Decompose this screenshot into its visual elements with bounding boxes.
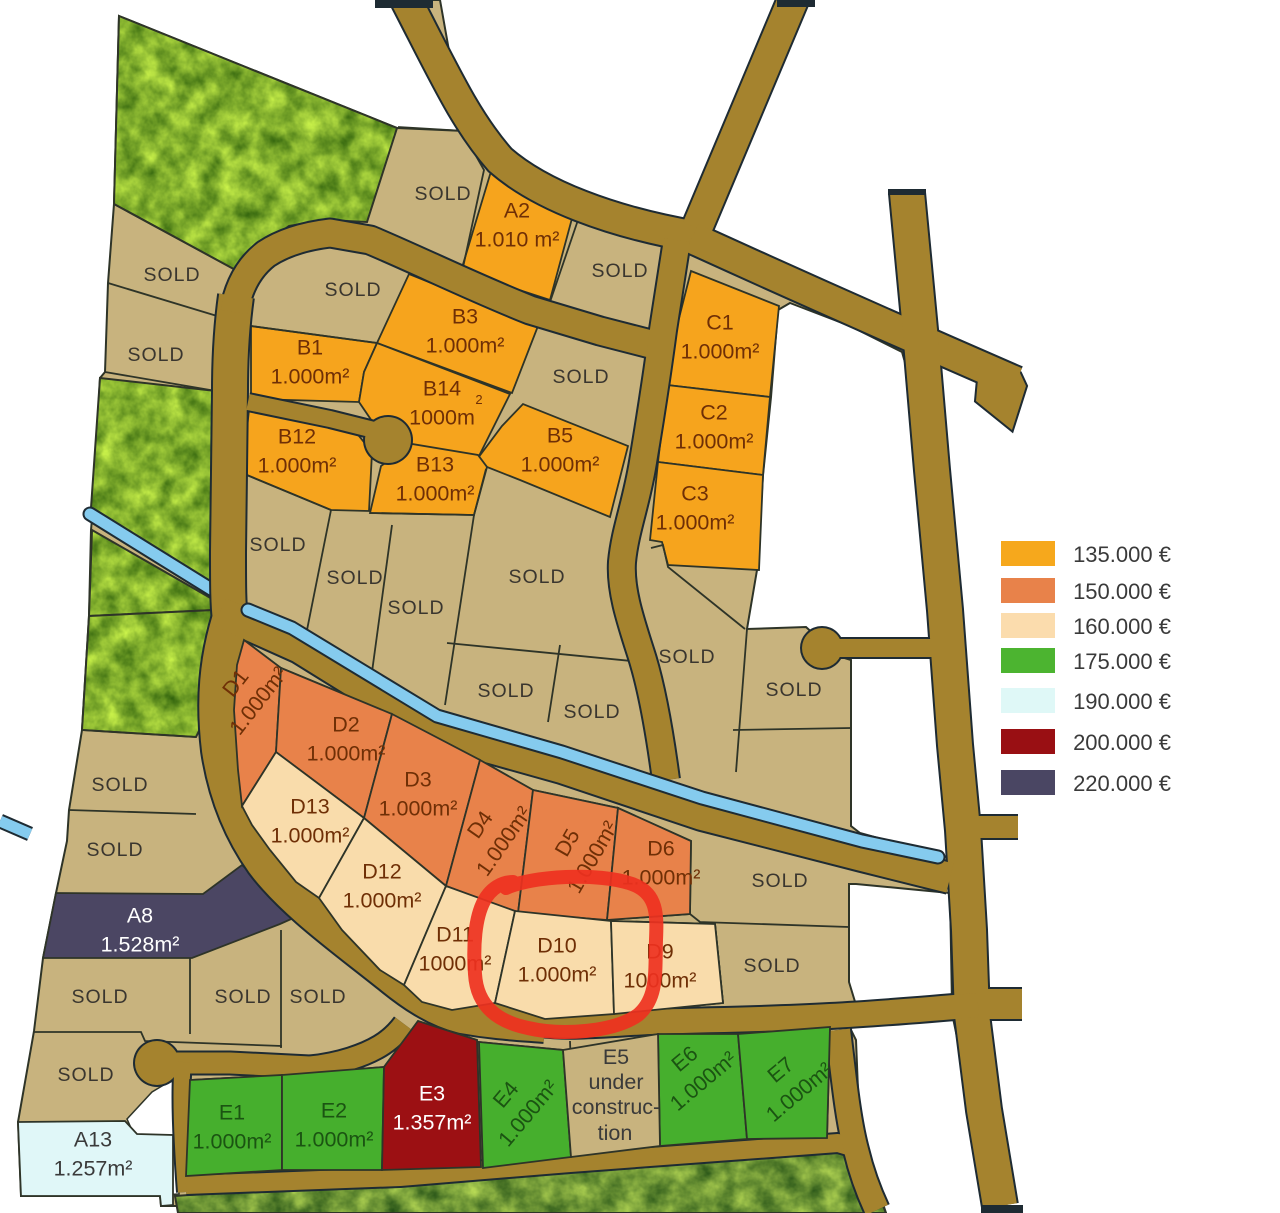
svg-text:1.357m²: 1.357m² — [393, 1111, 472, 1135]
svg-text:1.000m²: 1.000m² — [426, 334, 505, 358]
svg-text:D12: D12 — [362, 860, 401, 884]
svg-text:E1: E1 — [219, 1101, 245, 1125]
svg-text:190.000 €: 190.000 € — [1073, 689, 1171, 714]
svg-text:tion: tion — [598, 1121, 633, 1145]
svg-text:175.000 €: 175.000 € — [1073, 649, 1171, 674]
svg-text:SOLD: SOLD — [658, 646, 715, 668]
svg-text:C1: C1 — [706, 311, 733, 335]
svg-text:1.528m²: 1.528m² — [101, 933, 180, 957]
svg-text:C3: C3 — [681, 482, 709, 506]
svg-text:SOLD: SOLD — [249, 534, 306, 556]
svg-text:SOLD: SOLD — [751, 870, 808, 892]
svg-text:B5: B5 — [547, 424, 573, 448]
svg-text:2: 2 — [475, 392, 482, 407]
svg-text:1000m: 1000m — [409, 406, 475, 430]
svg-text:under: under — [589, 1070, 644, 1094]
svg-text:1.000m²: 1.000m² — [343, 889, 422, 913]
svg-text:E3: E3 — [419, 1082, 445, 1106]
svg-text:1.000m²: 1.000m² — [518, 963, 597, 987]
svg-text:SOLD: SOLD — [552, 366, 609, 388]
svg-text:220.000 €: 220.000 € — [1073, 771, 1171, 796]
svg-text:B3: B3 — [452, 305, 478, 329]
svg-text:D3: D3 — [404, 768, 432, 792]
svg-text:1.000m²: 1.000m² — [271, 365, 350, 389]
svg-text:D2: D2 — [332, 713, 359, 737]
svg-text:B12: B12 — [278, 425, 316, 449]
svg-text:1.010 m²: 1.010 m² — [475, 228, 560, 252]
svg-text:B1: B1 — [297, 336, 323, 360]
svg-text:SOLD: SOLD — [591, 260, 648, 282]
svg-text:D6: D6 — [647, 837, 675, 861]
svg-text:C2: C2 — [700, 401, 727, 425]
svg-text:1.000m²: 1.000m² — [258, 454, 337, 478]
svg-text:SOLD: SOLD — [326, 567, 383, 589]
svg-text:SOLD: SOLD — [127, 344, 184, 366]
svg-text:SOLD: SOLD — [743, 955, 800, 977]
svg-text:A8: A8 — [127, 904, 153, 928]
svg-text:1.257m²: 1.257m² — [54, 1157, 133, 1181]
svg-text:E2: E2 — [321, 1099, 347, 1123]
svg-text:1.000m²: 1.000m² — [307, 742, 386, 766]
svg-text:1.000m²: 1.000m² — [379, 797, 458, 821]
svg-text:SOLD: SOLD — [324, 279, 381, 301]
svg-text:SOLD: SOLD — [387, 597, 444, 619]
svg-text:SOLD: SOLD — [71, 986, 128, 1008]
svg-text:1.000m²: 1.000m² — [396, 482, 475, 506]
svg-text:SOLD: SOLD — [289, 986, 346, 1008]
svg-text:SOLD: SOLD — [91, 774, 148, 796]
svg-text:135.000 €: 135.000 € — [1073, 542, 1171, 567]
svg-text:E5: E5 — [603, 1045, 629, 1069]
svg-text:B14: B14 — [423, 377, 461, 401]
svg-text:1.000m²: 1.000m² — [521, 453, 600, 477]
svg-text:1.000m²: 1.000m² — [295, 1128, 374, 1152]
svg-text:SOLD: SOLD — [57, 1064, 114, 1086]
svg-text:A2: A2 — [504, 199, 530, 223]
svg-text:B13: B13 — [416, 453, 454, 477]
svg-text:SOLD: SOLD — [86, 839, 143, 861]
svg-text:SOLD: SOLD — [214, 986, 271, 1008]
svg-text:SOLD: SOLD — [143, 264, 200, 286]
svg-text:200.000 €: 200.000 € — [1073, 730, 1171, 755]
svg-text:D10: D10 — [537, 934, 576, 958]
svg-text:construc-: construc- — [572, 1095, 660, 1119]
svg-text:1.000m²: 1.000m² — [193, 1130, 272, 1154]
svg-text:SOLD: SOLD — [563, 701, 620, 723]
svg-text:SOLD: SOLD — [477, 680, 534, 702]
svg-text:SOLD: SOLD — [414, 183, 471, 205]
svg-text:A13: A13 — [74, 1128, 112, 1152]
svg-text:1.000m²: 1.000m² — [271, 824, 350, 848]
svg-text:150.000 €: 150.000 € — [1073, 579, 1171, 604]
svg-text:1.000m²: 1.000m² — [681, 340, 760, 364]
svg-text:D13: D13 — [290, 795, 329, 819]
svg-text:1.000m²: 1.000m² — [675, 430, 754, 454]
svg-text:160.000 €: 160.000 € — [1073, 614, 1171, 639]
svg-text:1.000m²: 1.000m² — [656, 511, 735, 535]
svg-text:SOLD: SOLD — [508, 566, 565, 588]
svg-text:SOLD: SOLD — [765, 679, 822, 701]
